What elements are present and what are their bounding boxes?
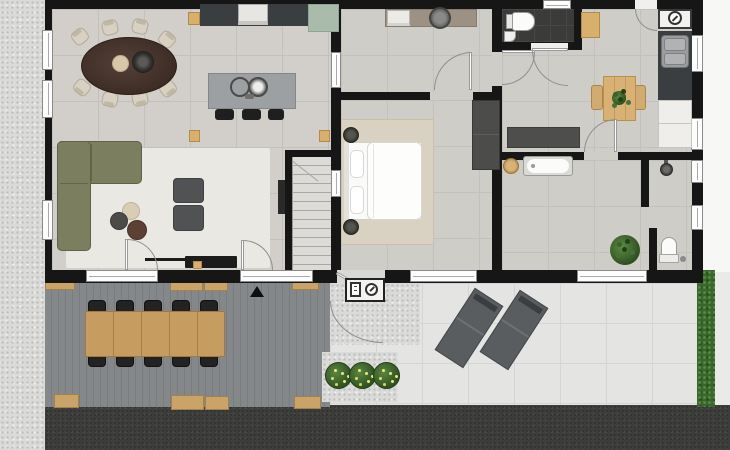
interior-window xyxy=(331,52,341,88)
tiles-beyond-hedge xyxy=(715,272,730,405)
window xyxy=(691,205,703,230)
bath-stool xyxy=(503,158,519,174)
utility-hall-door-leaf xyxy=(502,50,535,53)
fuse-box-icon xyxy=(350,282,361,297)
coffee-table-brown xyxy=(127,220,147,240)
sofa-seam xyxy=(60,183,88,184)
duvet-fold xyxy=(373,144,374,218)
circle-arrow-icon xyxy=(668,11,682,25)
candle-plate xyxy=(112,55,129,72)
nightstand xyxy=(343,127,359,143)
window xyxy=(410,270,477,282)
window xyxy=(691,35,703,72)
window xyxy=(543,0,571,9)
bath-drain xyxy=(531,164,535,168)
bed-headboard xyxy=(344,142,349,220)
pergola-beam xyxy=(171,395,204,410)
toilet-brush xyxy=(680,256,686,262)
asphalt-road xyxy=(45,405,730,450)
wood-stool xyxy=(189,130,200,142)
utility-hall-door-opening xyxy=(492,52,502,86)
sofa-seam xyxy=(91,144,92,181)
toilet-tank xyxy=(659,254,679,263)
bar-stool xyxy=(242,109,261,120)
bed-duvet xyxy=(367,142,422,220)
flower-bush xyxy=(325,362,352,389)
corner-sofa-chaise xyxy=(57,141,91,251)
wood-stool xyxy=(319,130,330,142)
terrace-door-leaf xyxy=(125,239,128,270)
pillow xyxy=(350,150,364,178)
bar-stool xyxy=(268,109,284,120)
wardrobe-seam xyxy=(473,134,499,135)
wardrobe xyxy=(472,100,500,170)
bathroom-door-opening xyxy=(584,152,618,160)
kitchenette-cabinets xyxy=(658,100,692,148)
washer xyxy=(387,10,410,26)
window xyxy=(42,30,53,70)
bathroom-plant xyxy=(610,235,640,265)
fridge-cabinet xyxy=(308,4,339,32)
nightstand xyxy=(343,219,359,235)
sink-basin xyxy=(664,38,686,51)
terrace-door-leaf xyxy=(241,240,244,270)
interior-window xyxy=(331,170,341,197)
terrace-door-window xyxy=(86,270,158,282)
garden-hedge xyxy=(697,270,715,407)
wc-door-leaf xyxy=(532,48,568,51)
shower-partition-wall xyxy=(641,160,649,207)
window xyxy=(691,160,703,183)
pergola-beam xyxy=(54,394,79,408)
pergola-beam xyxy=(205,396,229,410)
hall-bench xyxy=(581,12,600,38)
bathroom-door-leaf xyxy=(614,119,617,152)
wood-stool xyxy=(188,12,200,25)
oven xyxy=(238,4,268,25)
window xyxy=(691,118,703,150)
wood-stool xyxy=(193,261,202,269)
window xyxy=(577,270,647,282)
bar-stool xyxy=(215,109,234,120)
pergola-beam xyxy=(294,396,321,409)
table-bowl xyxy=(132,51,154,73)
table-plant xyxy=(612,91,626,105)
armchair xyxy=(173,205,204,231)
armchair xyxy=(173,178,204,203)
window xyxy=(42,200,53,240)
hall-sideboard xyxy=(507,127,580,148)
wall-tv xyxy=(278,180,285,214)
floor-plan xyxy=(0,0,730,450)
stair-wall-left xyxy=(285,155,292,270)
sink-basin xyxy=(664,53,686,65)
utility-basin xyxy=(429,7,451,29)
circle-arrow-icon xyxy=(365,283,378,296)
outdoor-table xyxy=(85,311,225,357)
entrance-marker-triangle xyxy=(250,286,264,297)
flower-bush xyxy=(373,362,400,389)
flower-bush xyxy=(349,362,376,389)
coffee-table-gray xyxy=(110,212,128,230)
wc-toilet-bowl xyxy=(512,12,535,31)
staircase xyxy=(292,157,331,270)
bedroom-door-leaf xyxy=(469,52,472,90)
pillow xyxy=(350,186,364,214)
shower-head xyxy=(660,163,673,176)
toilet-partition-wall xyxy=(649,228,657,270)
oval-dining-table xyxy=(81,37,177,95)
gravel-strip-left xyxy=(0,0,45,450)
terrace-door-window xyxy=(240,270,313,282)
planter-bed xyxy=(322,352,398,402)
cabinet-divider xyxy=(659,123,691,124)
island-faucet xyxy=(245,94,254,99)
window xyxy=(42,80,53,118)
rear-door-opening xyxy=(635,0,657,9)
bedroom-door-opening xyxy=(430,92,473,100)
kitchenette-chair xyxy=(591,85,603,110)
